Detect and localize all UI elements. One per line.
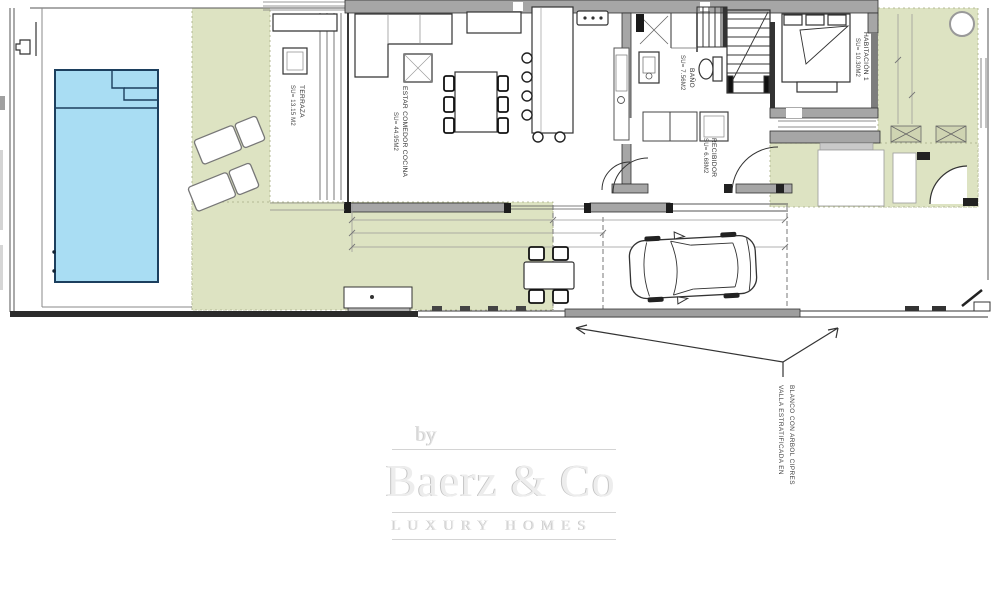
porch-wall — [770, 131, 880, 143]
bedroom-right-wall — [868, 13, 878, 33]
swimming-pool — [52, 70, 158, 282]
outdoor-shower-icon — [16, 22, 36, 56]
car-wheel — [723, 293, 739, 299]
tree-icon — [950, 12, 974, 36]
room-area-bano: SU= 7.56M2 — [679, 55, 685, 91]
bedroom — [782, 14, 850, 92]
scan-artifact — [0, 96, 5, 290]
pillow — [784, 15, 802, 25]
outdoor-table-icon — [524, 262, 574, 289]
car-wheel — [720, 232, 736, 238]
recibidor-wall — [612, 184, 648, 193]
kitchen — [522, 7, 629, 142]
paver — [893, 153, 916, 203]
watermark-divider — [392, 539, 616, 540]
recibidor-furniture — [643, 112, 728, 141]
window-sill — [820, 143, 873, 150]
pillow — [806, 15, 824, 25]
stairs-icon — [697, 7, 770, 93]
paver — [818, 150, 884, 206]
terrace-counter — [273, 14, 337, 31]
room-label-bano: BAÑO — [688, 68, 697, 88]
toilet-tank — [713, 57, 722, 81]
annotation-line2: BLANCO CON ARBOL CIPRES — [788, 385, 795, 485]
room-label-recibidor: RECIBIDOR — [710, 138, 717, 177]
bed-bench — [797, 82, 837, 92]
annotation-line1: VALLA ESTRATIFICADA EN — [777, 385, 784, 475]
watermark-divider — [392, 512, 616, 513]
floor-plan-page: VALLA ESTRATIFICADA EN BLANCO CON ARBOL … — [0, 0, 1000, 589]
sliding-doors — [320, 13, 341, 200]
pool-water — [55, 70, 158, 282]
pool-ladder-dot — [52, 250, 55, 253]
kitchen-island-icon — [532, 7, 573, 133]
room-area-terraza: SU= 13.15 M2 — [289, 85, 295, 126]
living-bottom-wall — [345, 203, 508, 212]
car-icon — [628, 228, 758, 306]
room-area-habitacion1: SU= 10.30M2 — [854, 38, 860, 78]
room-area-recibidor: SU= 6.68M2 — [702, 138, 708, 174]
room-label-estar: ESTAR COMEDOR COCINA — [401, 86, 408, 178]
watermark-by: by — [416, 422, 622, 447]
living-room — [355, 12, 521, 133]
door-gap — [786, 108, 802, 118]
sideboard-icon — [467, 12, 521, 33]
wall-gap — [513, 2, 523, 11]
dining-table-icon — [455, 72, 497, 132]
watermark-logo: by Baerz & Co LUXURY HOMES — [386, 422, 622, 542]
room-area-estar: SU= 44.95M2 — [392, 112, 398, 152]
boundary-window — [981, 58, 986, 128]
pillow — [828, 15, 846, 25]
car-wheel — [644, 236, 660, 242]
bedroom-left-wall — [770, 22, 775, 108]
car-mirror — [678, 296, 688, 304]
room-label-habitacion1: HABITACIÓN 1 — [862, 32, 871, 81]
watermark-brand: Baerz & Co — [386, 452, 622, 510]
driveway-gate — [565, 309, 800, 317]
shower-icon — [640, 13, 697, 48]
shower-head-icon — [636, 14, 644, 32]
watermark-divider — [392, 449, 616, 450]
room-label-terraza: TERRAZA — [298, 85, 305, 118]
top-wall — [345, 0, 878, 13]
living-bottom-wall — [590, 203, 670, 212]
pool-ladder-dot — [52, 269, 55, 272]
car-mirror — [674, 231, 684, 239]
bedroom-right-wall — [871, 33, 878, 108]
toilet-icon — [699, 59, 713, 79]
car-wheel — [648, 297, 664, 303]
watermark-tagline: LUXURY HOMES — [392, 518, 622, 535]
annotation-arrows — [576, 325, 838, 377]
